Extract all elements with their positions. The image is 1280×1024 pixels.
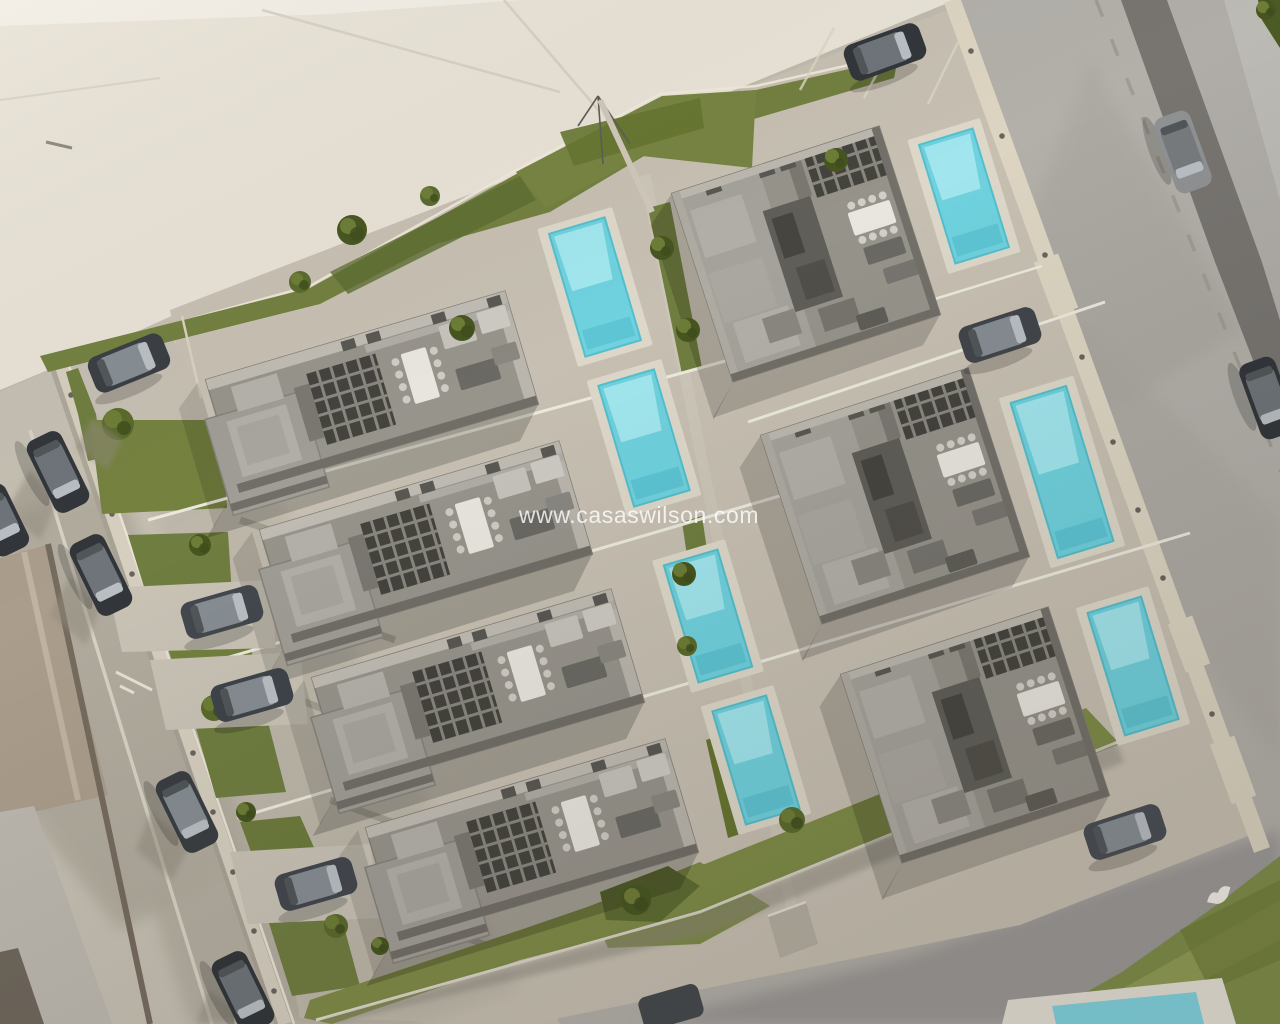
svg-text:www.casaswilson.com: www.casaswilson.com — [518, 502, 759, 528]
